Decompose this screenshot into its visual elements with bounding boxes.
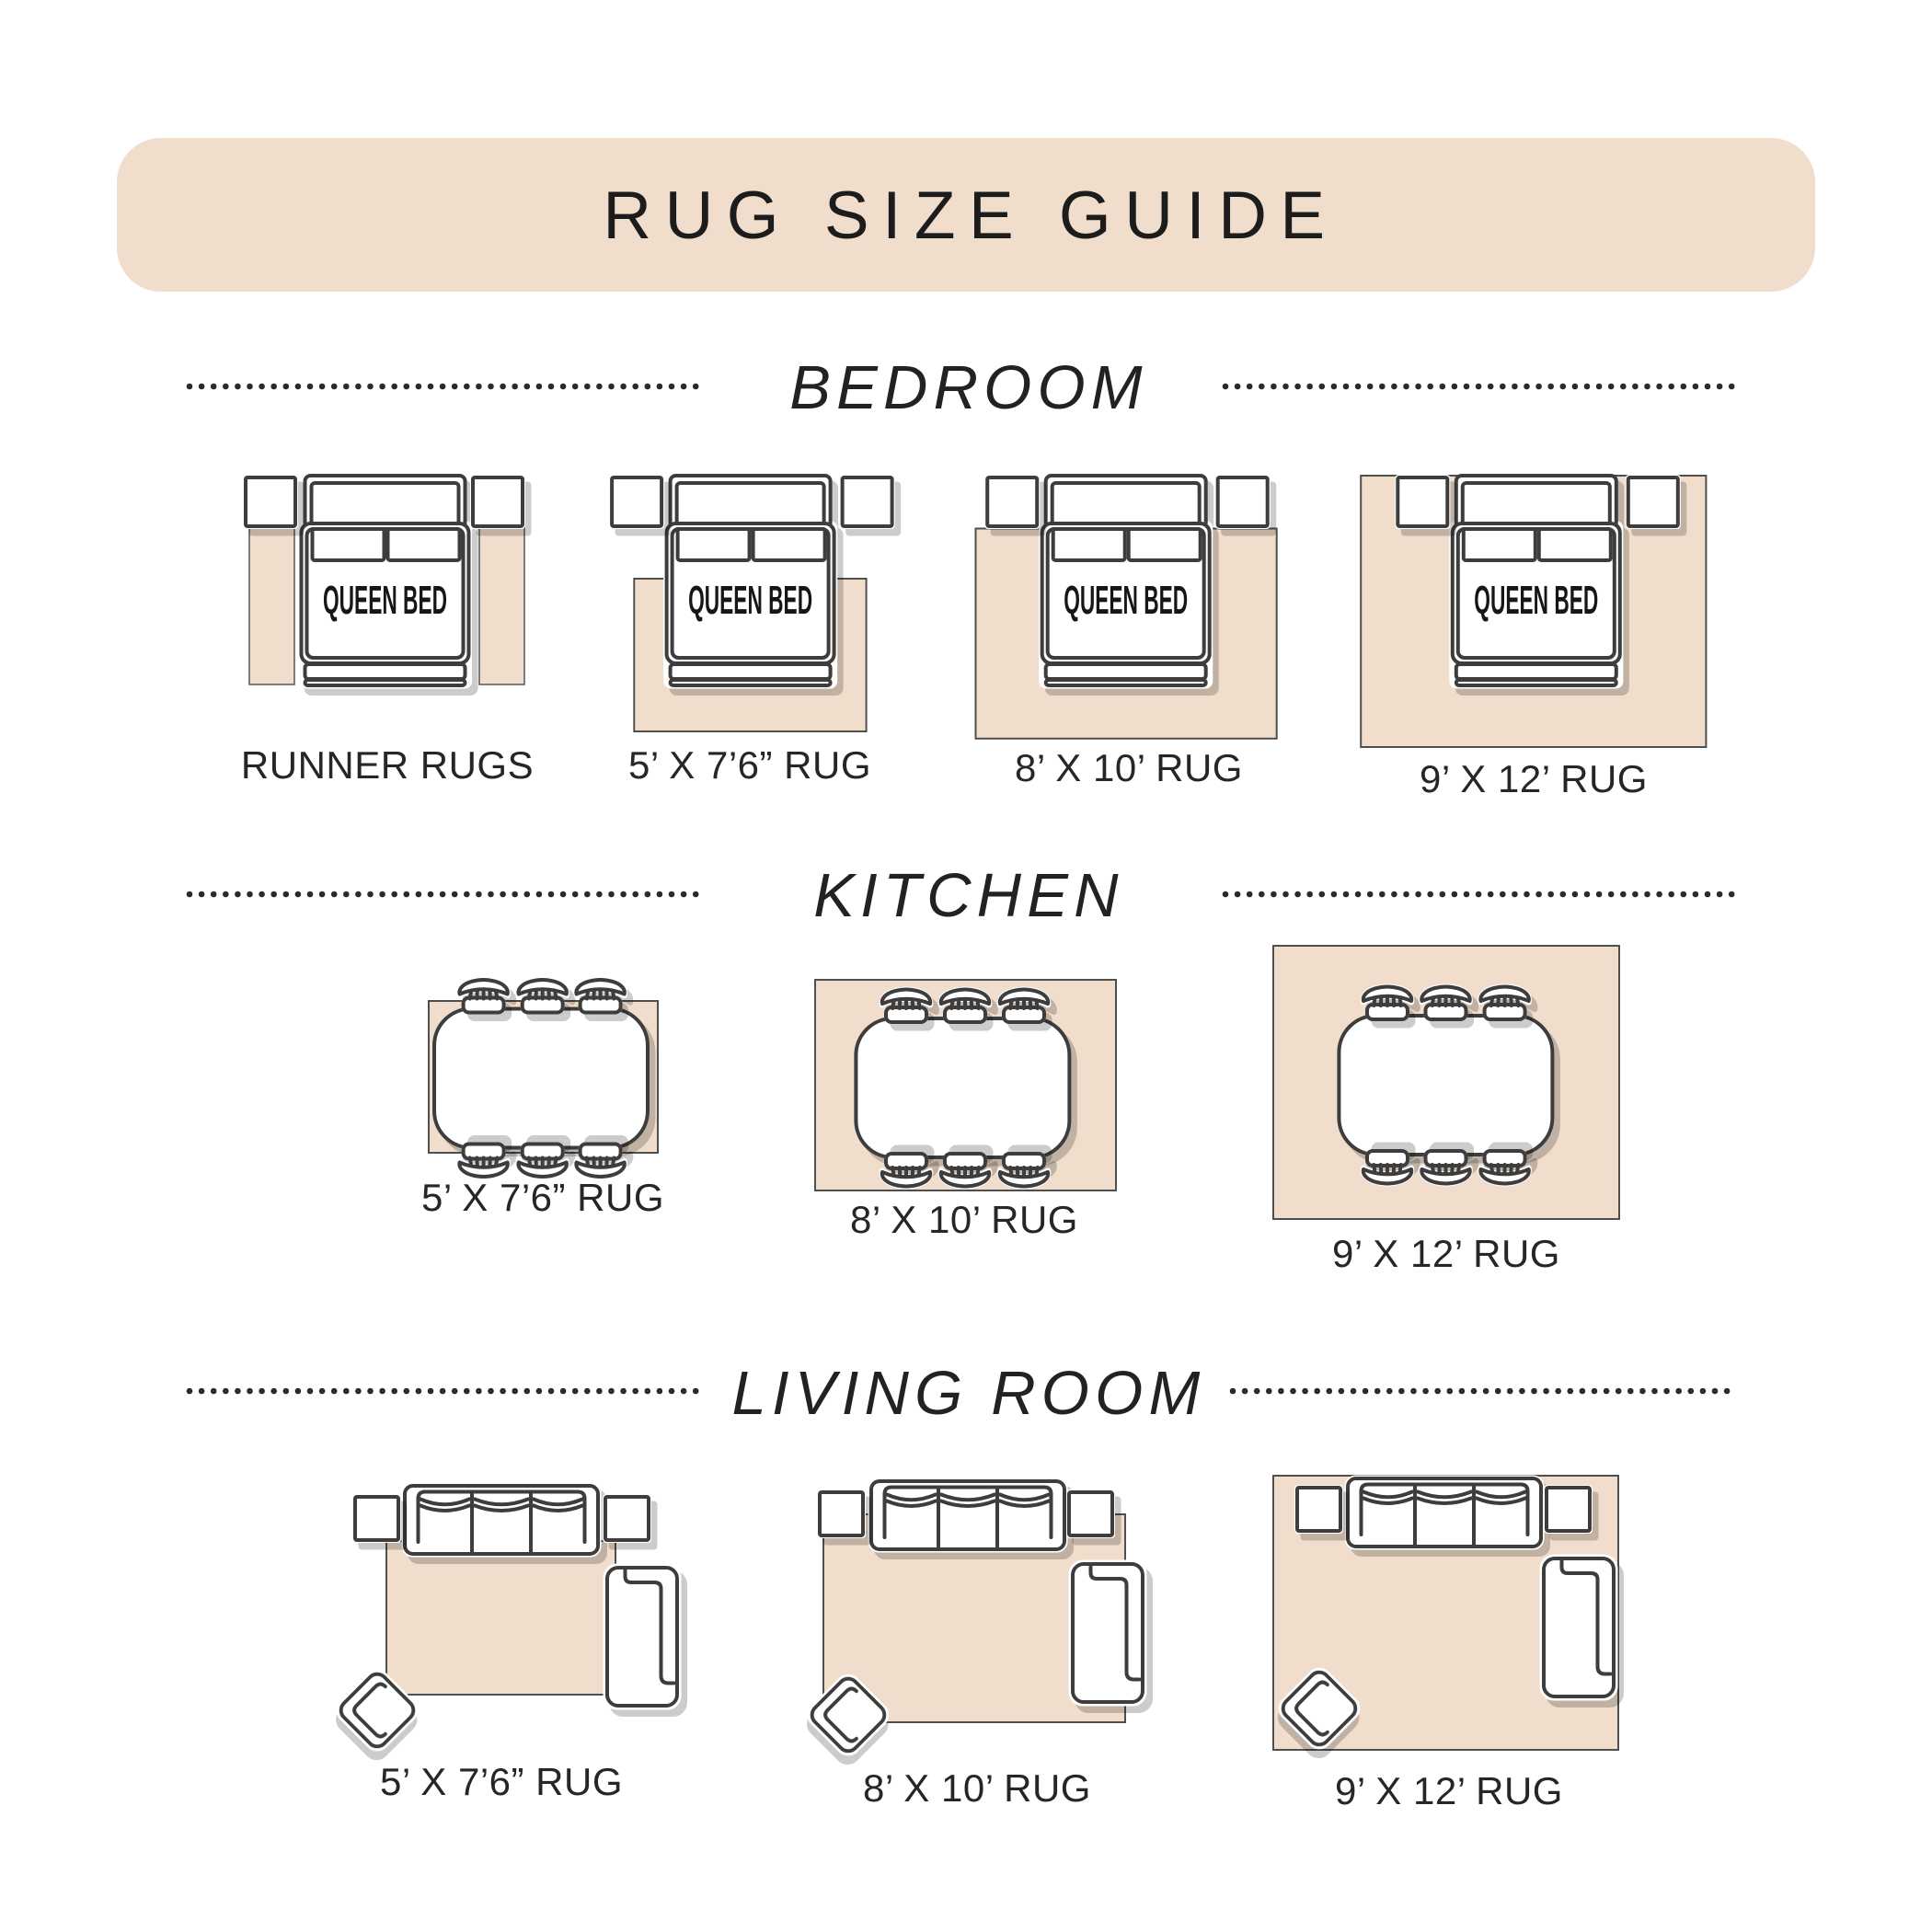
svg-text:9’ X 12’ RUG: 9’ X 12’ RUG [1420,757,1648,800]
svg-text:KITCHEN: KITCHEN [813,861,1123,930]
svg-text:RUG SIZE GUIDE: RUG SIZE GUIDE [603,178,1338,253]
svg-text:5’ X 7’6” RUG: 5’ X 7’6” RUG [421,1176,664,1219]
svg-text:8’ X 10’ RUG: 8’ X 10’ RUG [863,1766,1091,1810]
svg-text:9’ X 12’ RUG: 9’ X 12’ RUG [1332,1232,1560,1275]
svg-text:5’ X 7’6” RUG: 5’ X 7’6” RUG [380,1760,623,1803]
svg-text:BEDROOM: BEDROOM [789,353,1148,422]
svg-text:8’ X 10’ RUG: 8’ X 10’ RUG [850,1198,1078,1241]
svg-text:5’ X 7’6” RUG: 5’ X 7’6” RUG [628,743,871,787]
svg-text:LIVING ROOM: LIVING ROOM [732,1359,1206,1428]
svg-text:9’ X 12’ RUG: 9’ X 12’ RUG [1335,1769,1563,1812]
svg-text:RUNNER RUGS: RUNNER RUGS [241,743,534,787]
svg-text:8’ X 10’ RUG: 8’ X 10’ RUG [1015,746,1243,789]
